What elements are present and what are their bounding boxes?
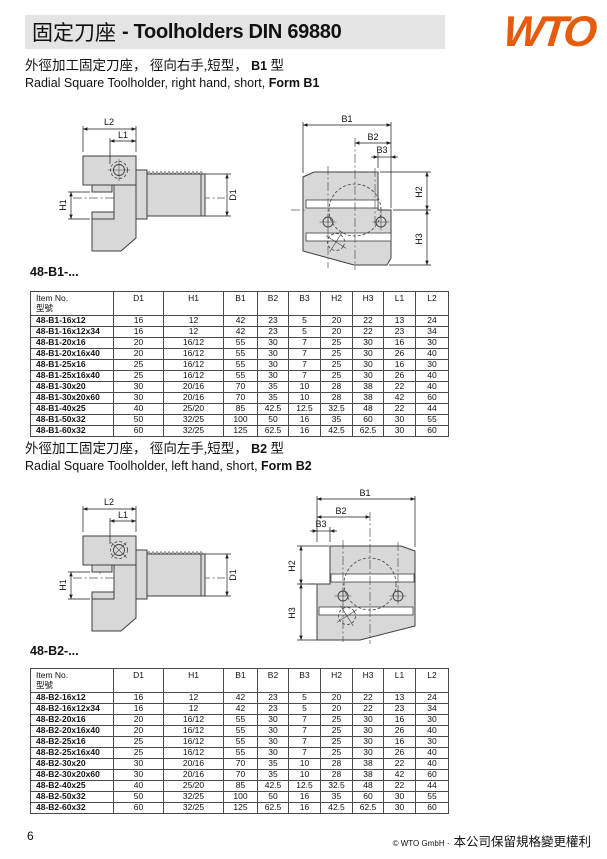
item-no-cell: 48-B2-20x16	[31, 715, 114, 726]
col-header-h2: H2	[321, 292, 353, 316]
value-cell: 16	[114, 327, 164, 338]
b1-front-view-drawing: B1 B2 B3 H2 H3	[283, 110, 498, 270]
subtitle-en-form: Form B1	[269, 76, 320, 90]
dimension-l2: L2	[83, 497, 136, 532]
col-header-d1: D1	[114, 292, 164, 316]
value-cell: 22	[384, 382, 416, 393]
value-cell: 20/16	[164, 770, 224, 781]
value-cell: 42	[224, 693, 258, 704]
page-title-bar: 固定刀座 - Toolholders DIN 69880	[25, 15, 445, 49]
table-header-row: Item No. 型號 D1 H1 B1 B2 B3 H2 H3 L1 L2	[31, 292, 449, 316]
value-cell: 40	[416, 382, 449, 393]
value-cell: 42.5	[321, 803, 353, 814]
value-cell: 12	[164, 327, 224, 338]
value-cell: 16	[114, 693, 164, 704]
value-cell: 10	[289, 382, 321, 393]
dim-label-b3: B3	[376, 145, 387, 155]
value-cell: 22	[384, 781, 416, 792]
dimension-b2: B2	[317, 506, 370, 517]
value-cell: 7	[289, 349, 321, 360]
value-cell: 10	[289, 759, 321, 770]
value-cell: 32/25	[164, 803, 224, 814]
subtitle-chinese: 外徑加工固定刀座， 徑向右手,短型， B1 型	[25, 58, 319, 74]
value-cell: 12	[164, 704, 224, 715]
value-cell: 16	[289, 792, 321, 803]
subtitle-en-text: Radial Square Toolholder, right hand, sh…	[25, 76, 265, 90]
wto-logo: WTO	[450, 11, 597, 54]
dim-label-h3: H3	[414, 233, 424, 245]
dim-label-d1: D1	[228, 569, 238, 581]
item-no-cell: 48-B2-25x16x40	[31, 748, 114, 759]
dim-label-d1: D1	[228, 189, 238, 201]
value-cell: 44	[416, 404, 449, 415]
value-cell: 42.5	[258, 781, 289, 792]
value-cell: 50	[258, 792, 289, 803]
value-cell: 22	[353, 316, 384, 327]
dimension-b2: B2	[355, 132, 391, 143]
value-cell: 70	[224, 393, 258, 404]
table-row: 48-B1-30x20x603020/1670351028384260	[31, 393, 449, 404]
table-row: 48-B2-16x12x3416124223520222334	[31, 704, 449, 715]
toolholder-body	[83, 536, 136, 631]
dim-label-b3: B3	[315, 519, 326, 529]
value-cell: 30	[384, 426, 416, 437]
shank	[136, 550, 205, 599]
item-no-label-cn: 型號	[36, 304, 113, 314]
dimension-l2: L2	[83, 117, 136, 152]
value-cell: 30	[258, 371, 289, 382]
value-cell: 20	[114, 338, 164, 349]
value-cell: 28	[321, 759, 353, 770]
item-no-cell: 48-B1-50x32	[31, 415, 114, 426]
value-cell: 42	[224, 316, 258, 327]
value-cell: 16	[384, 715, 416, 726]
dim-label-b2: B2	[367, 132, 378, 142]
value-cell: 22	[384, 404, 416, 415]
value-cell: 24	[416, 693, 449, 704]
value-cell: 35	[258, 759, 289, 770]
value-cell: 25	[114, 360, 164, 371]
dimension-d1: D1	[205, 174, 238, 216]
value-cell: 30	[258, 715, 289, 726]
dimension-b3: B3	[371, 145, 398, 168]
dimension-h3: H3	[287, 584, 317, 640]
value-cell: 28	[321, 393, 353, 404]
value-cell: 30	[384, 415, 416, 426]
value-cell: 30	[353, 737, 384, 748]
item-no-cell: 48-B2-20x16x40	[31, 726, 114, 737]
rights-text-chinese: 本公司保留規格變更權利	[453, 831, 591, 850]
dim-label-b1: B1	[359, 488, 370, 498]
dim-label-l1: L1	[118, 130, 128, 140]
value-cell: 10	[289, 393, 321, 404]
value-cell: 42	[384, 770, 416, 781]
value-cell: 30	[114, 382, 164, 393]
dim-label-h1: H1	[58, 199, 68, 211]
subtitle-en-form: Form B2	[261, 459, 312, 473]
value-cell: 55	[224, 737, 258, 748]
copyright-text: © WTO GmbH ·	[393, 839, 450, 848]
value-cell: 60	[353, 415, 384, 426]
table-row: 48-B1-30x203020/1670351028382240	[31, 382, 449, 393]
subtitle-chinese: 外徑加工固定刀座， 徑向左手,短型， B2 型	[25, 441, 312, 457]
value-cell: 25	[321, 737, 353, 748]
value-cell: 30	[353, 748, 384, 759]
dimension-b1: B1	[317, 488, 415, 547]
value-cell: 30	[416, 715, 449, 726]
value-cell: 30	[353, 371, 384, 382]
value-cell: 55	[224, 371, 258, 382]
value-cell: 12	[164, 693, 224, 704]
value-cell: 34	[416, 327, 449, 338]
value-cell: 32.5	[321, 781, 353, 792]
b1-side-view-drawing: L2 L1 H1 D1	[55, 108, 270, 268]
value-cell: 7	[289, 726, 321, 737]
value-cell: 38	[353, 770, 384, 781]
value-cell: 30	[353, 360, 384, 371]
col-header-l2: L2	[416, 292, 449, 316]
item-no-cell: 48-B1-16x12x34	[31, 327, 114, 338]
value-cell: 7	[289, 360, 321, 371]
dimension-d1: D1	[205, 554, 238, 596]
value-cell: 30	[353, 338, 384, 349]
table-body: 48-B2-16x121612422352022132448-B2-16x12x…	[31, 693, 449, 814]
value-cell: 60	[114, 426, 164, 437]
value-cell: 55	[224, 338, 258, 349]
value-cell: 25/20	[164, 781, 224, 792]
dim-label-h1: H1	[58, 579, 68, 591]
col-header-item-no: Item No. 型號	[31, 669, 114, 693]
value-cell: 23	[258, 704, 289, 715]
subtitle-cn-text: 外徑加工固定刀座， 徑向右手,短型，	[25, 58, 248, 73]
value-cell: 26	[384, 371, 416, 382]
value-cell: 40	[114, 404, 164, 415]
value-cell: 20/16	[164, 382, 224, 393]
value-cell: 16	[289, 803, 321, 814]
col-header-b3: B3	[289, 292, 321, 316]
footer-copyright: © WTO GmbH · 本公司保留規格變更權利	[393, 831, 591, 850]
value-cell: 40	[416, 349, 449, 360]
value-cell: 42	[224, 704, 258, 715]
table-row: 48-B1-25x162516/125530725301630	[31, 360, 449, 371]
item-no-cell: 48-B1-30x20x60	[31, 393, 114, 404]
value-cell: 25	[321, 748, 353, 759]
table-header-row: Item No. 型號 D1 H1 B1 B2 B3 H2 H3 L1 L2	[31, 669, 449, 693]
value-cell: 24	[416, 316, 449, 327]
value-cell: 25	[321, 726, 353, 737]
value-cell: 22	[384, 759, 416, 770]
value-cell: 20	[321, 693, 353, 704]
col-header-h2: H2	[321, 669, 353, 693]
value-cell: 30	[114, 770, 164, 781]
value-cell: 60	[416, 426, 449, 437]
table-row: 48-B2-16x1216124223520221324	[31, 693, 449, 704]
value-cell: 42.5	[321, 426, 353, 437]
value-cell: 32/25	[164, 792, 224, 803]
col-header-b3: B3	[289, 669, 321, 693]
value-cell: 55	[416, 415, 449, 426]
value-cell: 13	[384, 316, 416, 327]
value-cell: 38	[353, 393, 384, 404]
value-cell: 30	[416, 737, 449, 748]
value-cell: 62.5	[353, 803, 384, 814]
item-no-cell: 48-B1-16x12	[31, 316, 114, 327]
value-cell: 30	[384, 792, 416, 803]
table-row: 48-B2-40x254025/208542.512.532.5482244	[31, 781, 449, 792]
value-cell: 25	[321, 715, 353, 726]
table-row: 48-B1-20x162016/125530725301630	[31, 338, 449, 349]
value-cell: 30	[114, 393, 164, 404]
value-cell: 25	[321, 360, 353, 371]
dim-label-l2: L2	[104, 497, 114, 507]
value-cell: 60	[416, 803, 449, 814]
value-cell: 30	[416, 338, 449, 349]
item-no-cell: 48-B2-60x32	[31, 803, 114, 814]
col-header-b1: B1	[224, 292, 258, 316]
value-cell: 70	[224, 759, 258, 770]
item-no-cell: 48-B2-30x20	[31, 759, 114, 770]
value-cell: 38	[353, 382, 384, 393]
table-row: 48-B1-40x254025/208542.512.532.5482244	[31, 404, 449, 415]
value-cell: 25	[114, 737, 164, 748]
value-cell: 60	[353, 792, 384, 803]
dimensions-table-b2: Item No. 型號 D1 H1 B1 B2 B3 H2 H3 L1 L2 4…	[30, 668, 449, 814]
value-cell: 12.5	[289, 404, 321, 415]
value-cell: 23	[258, 693, 289, 704]
value-cell: 10	[289, 770, 321, 781]
value-cell: 62.5	[258, 803, 289, 814]
col-header-item-no: Item No. 型號	[31, 292, 114, 316]
value-cell: 16	[384, 338, 416, 349]
value-cell: 7	[289, 737, 321, 748]
value-cell: 22	[353, 327, 384, 338]
item-no-cell: 48-B2-16x12x34	[31, 704, 114, 715]
page-title-chinese: 固定刀座	[32, 17, 116, 47]
value-cell: 100	[224, 415, 258, 426]
value-cell: 28	[321, 382, 353, 393]
value-cell: 7	[289, 371, 321, 382]
value-cell: 60	[114, 803, 164, 814]
value-cell: 16/12	[164, 360, 224, 371]
value-cell: 26	[384, 748, 416, 759]
value-cell: 125	[224, 803, 258, 814]
value-cell: 42	[384, 393, 416, 404]
item-no-cell: 48-B1-25x16x40	[31, 371, 114, 382]
value-cell: 48	[353, 781, 384, 792]
value-cell: 16	[289, 415, 321, 426]
subtitle-cn-tail: 型	[270, 58, 284, 73]
section-b1-subtitle: 外徑加工固定刀座， 徑向右手,短型， B1 型 Radial Square To…	[25, 58, 319, 91]
value-cell: 85	[224, 404, 258, 415]
catalog-page: 固定刀座 - Toolholders DIN 69880 WTO 外徑加工固定刀…	[0, 0, 607, 859]
value-cell: 25	[114, 748, 164, 759]
value-cell: 7	[289, 338, 321, 349]
table-row: 48-B2-30x203020/1670351028382240	[31, 759, 449, 770]
value-cell: 26	[384, 349, 416, 360]
subtitle-english: Radial Square Toolholder, left hand, sho…	[25, 458, 312, 474]
dimension-h3: H3	[389, 210, 431, 265]
value-cell: 100	[224, 792, 258, 803]
value-cell: 35	[321, 415, 353, 426]
value-cell: 35	[258, 770, 289, 781]
value-cell: 25/20	[164, 404, 224, 415]
value-cell: 28	[321, 770, 353, 781]
value-cell: 50	[114, 415, 164, 426]
value-cell: 30	[353, 715, 384, 726]
section-b2-subtitle: 外徑加工固定刀座， 徑向左手,短型， B2 型 Radial Square To…	[25, 441, 312, 474]
value-cell: 40	[416, 759, 449, 770]
subtitle-cn-text: 外徑加工固定刀座， 徑向左手,短型，	[25, 441, 248, 456]
table-row: 48-B2-25x16x402516/125530725302640	[31, 748, 449, 759]
value-cell: 30	[258, 748, 289, 759]
table-row: 48-B1-50x325032/25100501635603055	[31, 415, 449, 426]
value-cell: 60	[416, 770, 449, 781]
item-no-cell: 48-B1-20x16x40	[31, 349, 114, 360]
value-cell: 30	[258, 338, 289, 349]
value-cell: 20	[114, 726, 164, 737]
value-cell: 23	[258, 327, 289, 338]
value-cell: 55	[416, 792, 449, 803]
value-cell: 62.5	[258, 426, 289, 437]
toolholder-front-body	[317, 546, 415, 640]
value-cell: 85	[224, 781, 258, 792]
dim-label-l2: L2	[104, 117, 114, 127]
value-cell: 55	[224, 715, 258, 726]
dim-label-b1: B1	[341, 114, 352, 124]
value-cell: 5	[289, 327, 321, 338]
value-cell: 16	[114, 316, 164, 327]
value-cell: 20	[114, 715, 164, 726]
value-cell: 30	[258, 737, 289, 748]
value-cell: 20	[114, 349, 164, 360]
value-cell: 22	[353, 693, 384, 704]
value-cell: 26	[384, 726, 416, 737]
col-header-h1: H1	[164, 292, 224, 316]
value-cell: 5	[289, 704, 321, 715]
value-cell: 30	[416, 360, 449, 371]
dim-label-h3: H3	[287, 607, 297, 619]
subtitle-cn-tail: 型	[270, 441, 284, 456]
value-cell: 16	[289, 426, 321, 437]
value-cell: 35	[321, 792, 353, 803]
value-cell: 16	[384, 360, 416, 371]
item-no-cell: 48-B1-30x20	[31, 382, 114, 393]
item-no-cell: 48-B1-20x16	[31, 338, 114, 349]
value-cell: 23	[384, 327, 416, 338]
col-header-l1: L1	[384, 669, 416, 693]
col-header-l2: L2	[416, 669, 449, 693]
col-header-h1: H1	[164, 669, 224, 693]
dim-label-h2: H2	[414, 186, 424, 198]
value-cell: 55	[224, 349, 258, 360]
value-cell: 40	[416, 726, 449, 737]
value-cell: 25	[321, 371, 353, 382]
item-no-cell: 48-B2-30x20x60	[31, 770, 114, 781]
value-cell: 30	[114, 759, 164, 770]
value-cell: 16/12	[164, 726, 224, 737]
value-cell: 30	[258, 360, 289, 371]
value-cell: 70	[224, 770, 258, 781]
page-title-english: - Toolholders DIN 69880	[122, 21, 341, 44]
value-cell: 16/12	[164, 349, 224, 360]
value-cell: 25	[321, 349, 353, 360]
value-cell: 42	[224, 327, 258, 338]
value-cell: 55	[224, 748, 258, 759]
value-cell: 30	[384, 803, 416, 814]
item-no-label-cn: 型號	[36, 681, 113, 691]
table-row: 48-B1-20x16x402016/125530725302640	[31, 349, 449, 360]
dimensions-table-b1: Item No. 型號 D1 H1 B1 B2 B3 H2 H3 L1 L2 4…	[30, 291, 449, 437]
dim-label-h2: H2	[287, 560, 297, 572]
value-cell: 60	[416, 393, 449, 404]
value-cell: 23	[384, 704, 416, 715]
value-cell: 35	[258, 393, 289, 404]
table-row: 48-B1-60x326032/2512562.51642.562.53060	[31, 426, 449, 437]
value-cell: 16/12	[164, 748, 224, 759]
item-no-cell: 48-B2-50x32	[31, 792, 114, 803]
value-cell: 20	[321, 704, 353, 715]
table-row: 48-B1-16x1216124223520221324	[31, 316, 449, 327]
value-cell: 55	[224, 726, 258, 737]
value-cell: 55	[224, 360, 258, 371]
value-cell: 70	[224, 382, 258, 393]
value-cell: 20/16	[164, 393, 224, 404]
item-no-cell: 48-B1-25x16	[31, 360, 114, 371]
value-cell: 5	[289, 693, 321, 704]
value-cell: 5	[289, 316, 321, 327]
value-cell: 7	[289, 748, 321, 759]
value-cell: 34	[416, 704, 449, 715]
value-cell: 20/16	[164, 759, 224, 770]
value-cell: 16	[114, 704, 164, 715]
col-header-h3: H3	[353, 292, 384, 316]
section-b2-label: 48-B2-...	[30, 644, 79, 658]
value-cell: 12	[164, 316, 224, 327]
item-no-cell: 48-B2-16x12	[31, 693, 114, 704]
dimension-h1: H1	[58, 572, 90, 599]
value-cell: 16/12	[164, 715, 224, 726]
value-cell: 12.5	[289, 781, 321, 792]
item-no-cell: 48-B2-25x16	[31, 737, 114, 748]
subtitle-cn-form: B1	[251, 59, 267, 73]
dimension-h2: H2	[287, 546, 329, 584]
dim-label-b2: B2	[335, 506, 346, 516]
table-row: 48-B2-60x326032/2512562.51642.562.53060	[31, 803, 449, 814]
subtitle-english: Radial Square Toolholder, right hand, sh…	[25, 75, 319, 91]
value-cell: 23	[258, 316, 289, 327]
value-cell: 50	[114, 792, 164, 803]
value-cell: 125	[224, 426, 258, 437]
col-header-l1: L1	[384, 292, 416, 316]
dimension-h1: H1	[58, 192, 90, 219]
value-cell: 16/12	[164, 338, 224, 349]
col-header-h3: H3	[353, 669, 384, 693]
col-header-b1: B1	[224, 669, 258, 693]
col-header-b2: B2	[258, 292, 289, 316]
value-cell: 44	[416, 781, 449, 792]
table-row: 48-B2-20x162016/125530725301630	[31, 715, 449, 726]
value-cell: 7	[289, 715, 321, 726]
value-cell: 32.5	[321, 404, 353, 415]
table-row: 48-B2-50x325032/25100501635603055	[31, 792, 449, 803]
value-cell: 30	[258, 726, 289, 737]
value-cell: 22	[353, 704, 384, 715]
col-header-b2: B2	[258, 669, 289, 693]
dim-label-l1: L1	[118, 510, 128, 520]
value-cell: 35	[258, 382, 289, 393]
value-cell: 25	[114, 371, 164, 382]
item-no-cell: 48-B1-60x32	[31, 426, 114, 437]
